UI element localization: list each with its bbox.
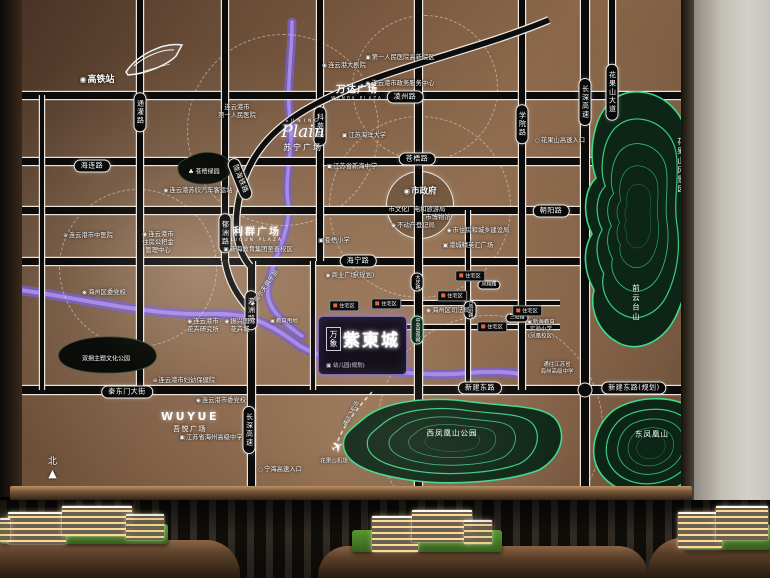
poi-label: ◉市住房和城乡建设局 [447,227,510,235]
poi-label: 市文化广电和旅游局 [389,206,446,214]
road-label: 苍梧路 [399,153,436,166]
poi-icon: ▣ [223,247,228,253]
residential-zone-label: 住宅区 [329,300,359,311]
zone-icon [516,308,520,312]
mountain-label: 西凤凰山公园 [427,428,478,439]
poi-icon: ▣ [270,319,275,325]
poi-label: ▣江苏省新海中学 [327,163,377,171]
project-kindergarten-note: ▣ 幼儿园(规划) [326,361,365,369]
poi-icon: ◉ [426,308,431,314]
poi-label: ◉连云港市 花卉研究所 [187,318,218,334]
zone-icon [481,324,485,328]
road-label: 海连路 [74,160,111,173]
road-label: 凌州路 [387,91,424,104]
poi-icon: ◉ [187,319,192,325]
road-label: 凤翔路 [477,281,500,290]
poi-label: ⊕连云港市妇幼保健院 [153,377,215,385]
poi-label: 通往江苏省 海州高级中学 [540,362,573,376]
poi-label: ◉海州区委党校 [82,289,126,297]
poi-label: ◉市政府 [403,187,436,198]
building-model [0,518,10,542]
residential-zone-label: 住宅区 [437,290,467,301]
poi-label: ○花果山高速入口 [535,137,585,145]
wuyue-plaza-logo: WUYUE 吾悦广场 [161,410,219,434]
poi-icon: ▣ [179,435,184,441]
road-label: 秦东门大街 [101,386,153,399]
poi-label: ⊕连云港市中医院 [63,232,113,240]
compass-north: 北 ▲ [48,458,57,480]
zone-icon [459,273,463,277]
road-label: 朝阳路 [533,205,570,218]
sales-office-map-photo: 凌州路海连路苍梧路朝阳路海宁路秦东门大街新建东路新建东路(规划)通灌路郁洲路科苑… [0,0,770,578]
model-table-scene [0,500,770,578]
road-label: 学院路 [516,104,529,144]
poi-label: ◉连云港市委党校 [196,397,246,405]
mountain-label: 东凤凰山 [635,429,669,440]
poi-icon: ⊕ [63,233,68,239]
poi-label: ▣新海教育 实验小学 (凤凰校区) [527,320,555,341]
suning-plaza-logo: SUNING Plain 苏宁广场 [281,119,324,153]
board-frame-bottom [10,486,692,501]
poi-icon: ◉ [403,187,410,196]
poi-label: ▣江苏海洋大学 [342,132,386,140]
board-frame-right [681,0,694,500]
poi-icon: ▣ [318,238,323,244]
overlay-layer [0,0,770,497]
road-label: 长深高速 [579,78,592,126]
poi-icon: ◉ [164,188,169,194]
road-label: 大庆路 [411,273,424,292]
train-icon [126,45,182,75]
zone-icon [441,293,445,297]
building-model [716,506,768,540]
poi-icon: ▣ [365,55,370,61]
road-label: 长深高速 [243,406,256,454]
park-label: 双拥主题文化公园 [82,354,130,363]
road-label: 新建东路 [458,382,502,395]
poi-label: 花果山机场 [320,459,348,466]
poi-label: ◉连云港市 住房公积金 管理中心 [142,231,173,255]
poi-icon: ⊕ [153,378,158,384]
poi-label: ◉振兴国际 花卉城 [224,318,255,334]
building-model [464,520,492,544]
poi-icon: ▣ [443,243,448,249]
wanda-plaza-logo: 万达广场 WANDA PLAZA [331,82,382,101]
poi-label: ◉商业广场(规划) [326,272,375,280]
poi-icon: ◉ [82,290,87,296]
poi-label: 市博物馆 [425,214,450,222]
poi-label: ◉海州区司法局 [426,307,470,315]
poi-label: ◉不动产登记局 [391,222,435,230]
model-table-left [0,540,240,578]
poi-label: ▣江苏省海州高级中学 [179,434,242,442]
poi-icon: ◉ [447,228,452,234]
north-arrow-icon: ▲ [48,468,57,480]
residential-zone-label: 住宅区 [477,321,507,332]
poi-icon: ◉ [326,273,331,279]
poi-label: ▣港城精英汇广场 [443,242,493,250]
poi-label: ○宁海高速入口 [258,466,302,474]
park-label: ♣ 苍梧绿园 [188,167,219,176]
poi-label: ◉高铁站 [79,74,114,86]
residential-zone-label: 住宅区 [371,298,401,309]
wall [694,0,770,500]
poi-icon: ▣ [342,133,347,139]
poi-icon: ▣ [327,164,332,170]
poi-label: ◉连云港大剧院 [322,62,366,70]
building-model [126,514,164,540]
map-board: 凌州路海连路苍梧路朝阳路海宁路秦东门大街新建东路新建东路(规划)通灌路郁洲路科苑… [0,0,770,497]
road-label: 新建东路(规划) [601,382,666,395]
building-model [412,510,472,542]
poi-icon: ○ [258,467,263,473]
residential-zone-label: 住宅区 [455,270,485,281]
road-label: 花果山大道 [606,64,619,121]
project-name: 紫東城 [343,326,400,351]
poi-icon: ▣ [527,320,532,326]
poi-icon: ◉ [196,398,201,404]
poi-icon: ◉ [142,232,147,238]
zone-icon [375,301,379,305]
poi-icon: ◉ [79,74,86,84]
poi-label: ▣苍梧小学 [318,237,350,245]
liqun-plaza-logo: 利群广场 LIQUN PLAZA [231,223,283,243]
park-shapes [59,152,232,373]
poi-icon: ◉ [322,63,327,69]
board-frame-left [0,0,22,497]
poi-label: 连云港市 第一人民医院 [218,104,256,120]
road-label: 中央景观带 [411,316,424,345]
mountain-label: 前云台山 [631,284,642,322]
poi-label: ▣新海教育集团至善校区 [223,246,292,254]
poi-label: ▣教育用地 [270,319,298,326]
residential-zone-label: 住宅区 [512,305,542,316]
poi-icon: ◉ [391,223,396,229]
poi-icon: ◉ [224,319,229,325]
road-label: 海宁路 [340,255,377,268]
zone-icon [333,303,337,307]
building-model [62,506,132,536]
poi-label: ▣第一人民医院高新院区 [365,54,434,62]
poi-label: ◉连云港苏欣汽车客运站 [164,187,233,195]
project-brand-logo: 万象 [326,327,341,351]
building-model [8,512,66,544]
road-label: 通灌路 [134,92,147,132]
poi-icon: ○ [535,138,540,144]
mountain-west-fenghuang [343,399,561,482]
project-block-zidongcheng: 万象 紫東城 ▣ 幼儿园(规划) [318,316,407,375]
